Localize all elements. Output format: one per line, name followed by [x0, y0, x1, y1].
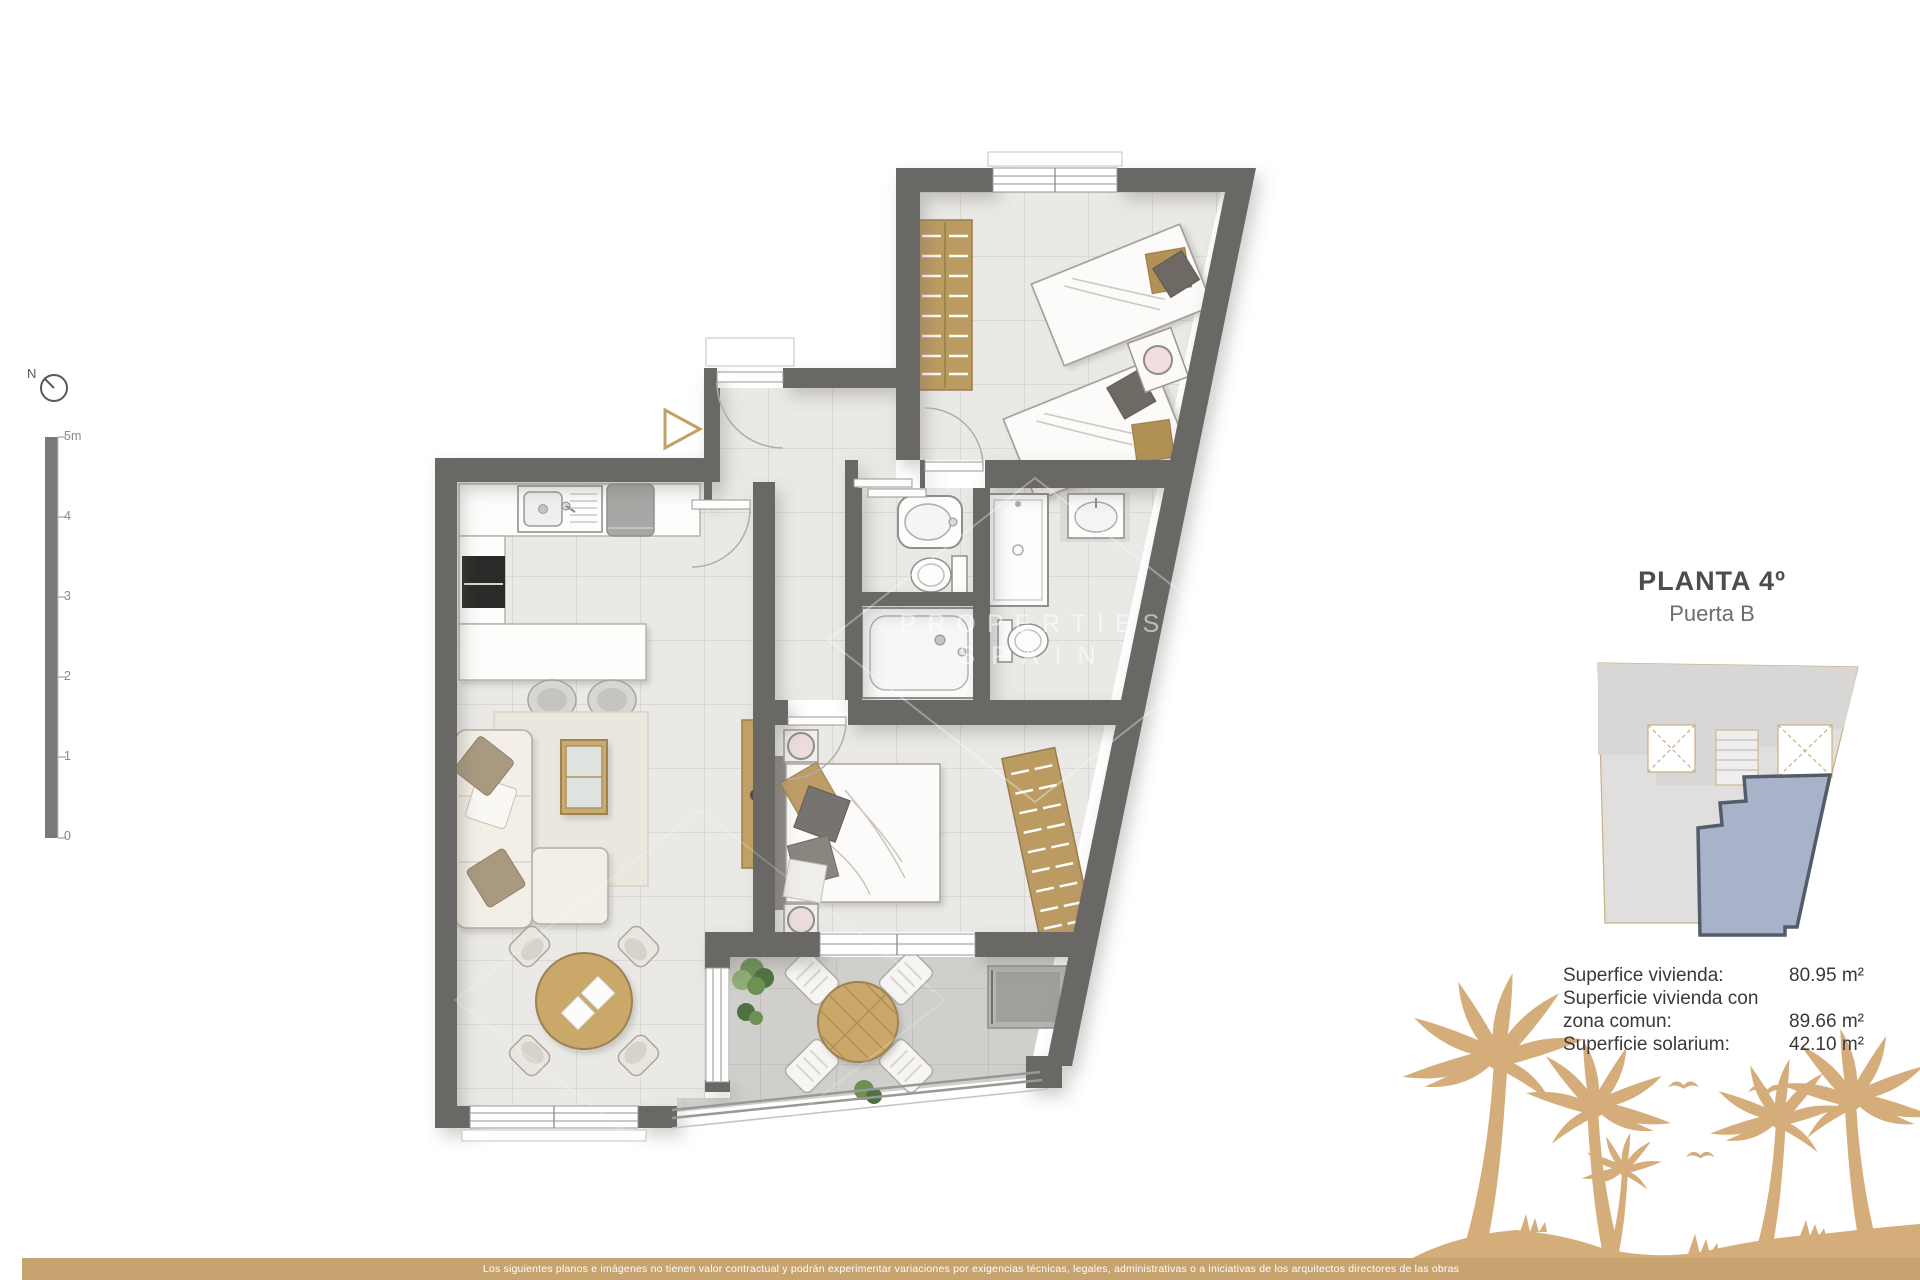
nightstand	[784, 730, 818, 762]
lamp	[788, 907, 814, 933]
scale-tick-label: 5m	[64, 429, 104, 443]
laundry-basin	[1060, 492, 1130, 542]
area-value	[1789, 987, 1881, 1010]
elevator-shaft	[1778, 725, 1832, 777]
grass-tuft	[1800, 1220, 1826, 1236]
shower	[988, 494, 1048, 606]
floor-plan-canvas	[0, 0, 1920, 1280]
dining-table	[536, 953, 632, 1049]
area-label: Superfice vivienda:	[1563, 964, 1789, 987]
bathtub	[862, 608, 976, 698]
area-row: zona comun: 89.66 m²	[1563, 1010, 1881, 1033]
scale-tick-label: 1	[64, 749, 104, 763]
area-value: 42.10 m²	[1789, 1033, 1881, 1056]
grass-tuft	[1688, 1234, 1719, 1254]
disclaimer-bar: Los siguientes planos e imágenes no tien…	[22, 1258, 1920, 1280]
washbasin	[898, 496, 962, 548]
compass-north-label: N	[27, 366, 36, 381]
area-value: 89.66 m²	[1789, 1010, 1881, 1033]
area-row: Superfice vivienda: 80.95 m²	[1563, 964, 1881, 987]
lamp	[788, 733, 814, 759]
floor-plan-page: { "title": { "floor": "PLANTA 4º", "door…	[0, 0, 1920, 1280]
area-label: Superficie solarium:	[1563, 1033, 1789, 1056]
bedroom2-door-leaf	[925, 462, 983, 471]
entrance-door-leaf	[717, 372, 783, 382]
kitchen-island	[459, 624, 646, 680]
bedroom-door-leaf	[788, 717, 846, 725]
area-label: Superficie vivienda con	[1563, 987, 1789, 1010]
kitchen-sink	[518, 486, 602, 532]
area-row: Superficie vivienda con	[1563, 987, 1881, 1010]
corridor-floor	[775, 482, 845, 700]
page-subtitle: Puerta B	[1562, 601, 1862, 627]
area-value: 80.95 m²	[1789, 964, 1881, 987]
area-summary: Superfice vivienda: 80.95 m² Superficie …	[1563, 964, 1881, 1056]
double-bed	[780, 762, 940, 903]
scale-tick-label: 3	[64, 589, 104, 603]
scale-tick-label: 0	[64, 829, 104, 843]
grass-tuft	[1520, 1214, 1547, 1232]
coffee-table	[561, 740, 607, 814]
scale-bar	[45, 437, 66, 838]
elevator-shaft	[1648, 725, 1695, 772]
living-door-leaf	[692, 500, 750, 509]
page-title: PLANTA 4º	[1562, 566, 1862, 597]
bathroom-sliding-door	[854, 479, 912, 487]
area-label: zona comun:	[1563, 1010, 1789, 1033]
scale-tick-label: 2	[64, 669, 104, 683]
disclaimer-text: Los siguientes planos e imágenes no tien…	[483, 1263, 1459, 1275]
nightstand	[784, 904, 818, 936]
entrance-arrow-icon	[665, 410, 700, 448]
area-row: Superficie solarium: 42.10 m²	[1563, 1033, 1881, 1056]
key-plan	[1598, 663, 1858, 935]
scale-tick-label: 4	[64, 509, 104, 523]
bathroom-sliding-door	[868, 489, 926, 497]
compass-icon	[41, 375, 67, 401]
hallway-floor	[720, 388, 896, 482]
toilet	[911, 556, 967, 594]
oven	[462, 556, 505, 608]
wardrobe	[918, 220, 972, 390]
